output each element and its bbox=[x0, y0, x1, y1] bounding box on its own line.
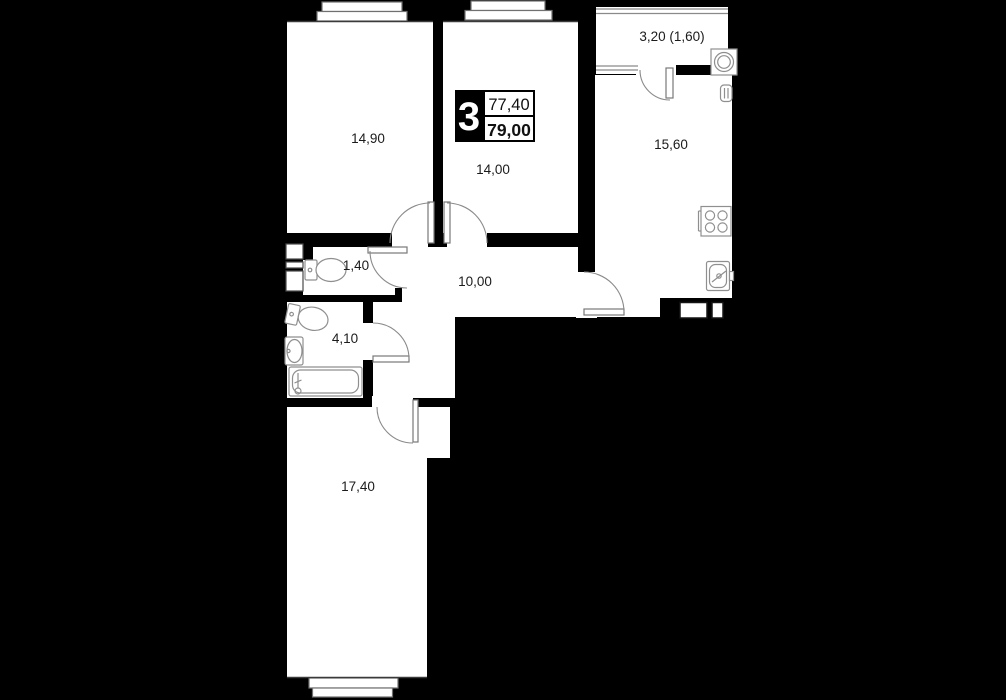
kitchen-sink-icon bbox=[707, 262, 734, 291]
label-bedroom-area: 14,90 bbox=[351, 131, 385, 146]
label-wc-area: 1,40 bbox=[343, 258, 369, 273]
floorplan-svg: 3 77,40 79,00 14,90 14,00 3,20 (1,60) 15… bbox=[0, 0, 1006, 700]
room-living bbox=[287, 407, 450, 678]
doorway-secondary bbox=[447, 231, 487, 249]
doorway-bathroom bbox=[361, 323, 375, 360]
doorway-bedroom bbox=[392, 231, 428, 249]
label-balcony-area: 3,20 (1,60) bbox=[639, 29, 704, 44]
label-living-area: 17,40 bbox=[341, 479, 375, 494]
wall-stub bbox=[303, 247, 313, 260]
label-hallway-area: 10,00 bbox=[458, 274, 492, 289]
wall-niche-entry bbox=[680, 303, 723, 319]
badge-area-top: 77,40 bbox=[488, 96, 529, 114]
badge-room-count: 3 bbox=[458, 95, 480, 139]
washing-machine-icon bbox=[711, 49, 737, 75]
water-heater-icon bbox=[721, 85, 733, 102]
wash-basin-icon bbox=[285, 337, 303, 365]
label-kitchen-area: 15,60 bbox=[654, 137, 688, 152]
doorway-wc bbox=[393, 250, 407, 288]
floorplan-canvas: 3 77,40 79,00 14,90 14,00 3,20 (1,60) 15… bbox=[0, 0, 1006, 700]
doorway-living bbox=[372, 396, 413, 409]
label-bathroom-area: 4,10 bbox=[332, 331, 358, 346]
room-bedroom bbox=[287, 21, 433, 233]
badge-area-bottom: 79,00 bbox=[487, 120, 531, 140]
ventilation-shaft bbox=[286, 244, 303, 291]
bathtub-icon bbox=[289, 367, 362, 396]
stove-icon bbox=[699, 207, 732, 237]
unit-badge: 3 77,40 79,00 bbox=[455, 90, 534, 142]
window-balcony-kitchen bbox=[596, 63, 638, 74]
label-secondary-area: 14,00 bbox=[476, 162, 510, 177]
toilet-icon bbox=[305, 259, 346, 282]
